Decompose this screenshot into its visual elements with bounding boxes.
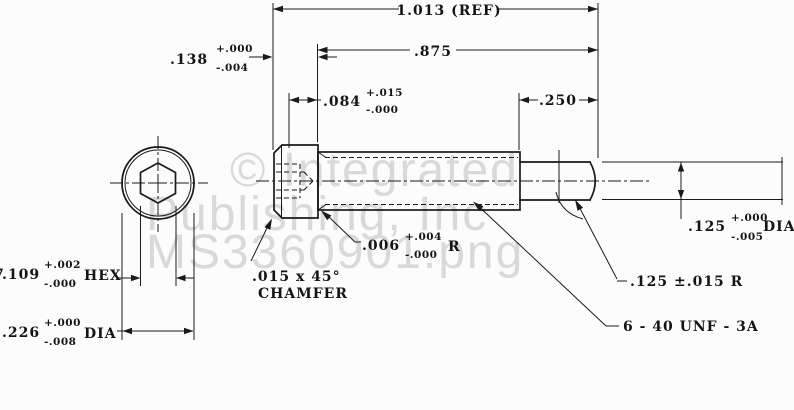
dim-overall-length: 1.013 (REF) (273, 3, 598, 19)
note-tip-radius: .125 ±.015 R (556, 192, 743, 290)
pilot-diameter-value: .125 (688, 219, 726, 235)
tip-radius-label: .125 ±.015 R (630, 274, 743, 290)
thread-spec-label: 6 - 40 UNF - 3A (623, 319, 759, 335)
socket-depth-tol-minus: -.000 (366, 104, 398, 116)
head-height-tol-minus: -.004 (216, 62, 248, 74)
dim-head-diameter: .226 +.000 -.008 DIA (2, 317, 194, 348)
chamfer-note-line1: .015 x 45° (252, 269, 341, 285)
head-height-tol-plus: +.000 (216, 43, 253, 55)
underhead-radius-tol-plus: +.004 (405, 231, 442, 243)
socket-depth-tol-plus: +.015 (366, 87, 403, 99)
overall-length-label: 1.013 (REF) (396, 3, 501, 19)
dim-pilot-length: .250 (520, 93, 598, 109)
dim-shank-length: .875 (318, 44, 599, 60)
hex-size-suffix: HEX (84, 268, 122, 284)
underhead-radius-suffix: R (448, 239, 461, 255)
head-height-value: .138 (170, 52, 208, 68)
head-diameter-value: .226 (2, 325, 40, 341)
head-diameter-tol-plus: +.000 (44, 317, 81, 329)
hex-size-value: .109 (2, 267, 40, 283)
dim-socket-depth: .084 +.015 -.000 (290, 87, 403, 116)
pilot-length-label: .250 (539, 93, 577, 109)
engineering-drawing-page: © Integrated Publishing, Inc MS3360901.p… (0, 0, 794, 410)
dim-head-height: .138 +.000 -.004 (170, 43, 337, 74)
dim-pilot-diameter: .125 +.000 -.005 DIA (602, 157, 794, 243)
hex-size-tol-minus: -.000 (44, 278, 76, 290)
socket-depth-value: .084 (323, 94, 361, 110)
underhead-radius-tol-minus: -.000 (405, 249, 437, 261)
top-extension-lines (273, 3, 598, 158)
chamfer-note-line2: CHAMFER (258, 286, 348, 302)
pilot-diameter-tol-minus: -.005 (731, 231, 763, 243)
shank-length-label: .875 (414, 44, 452, 60)
hex-size-tol-plus: +.002 (44, 259, 81, 271)
drawing-canvas: © Integrated Publishing, Inc MS3360901.p… (0, 0, 794, 410)
pilot-diameter-suffix: DIA (763, 219, 794, 235)
head-diameter-tol-minus: -.008 (44, 336, 76, 348)
underhead-radius-value: .006 (362, 238, 400, 254)
watermark: © Integrated Publishing, Inc MS3360901.p… (146, 144, 524, 279)
head-diameter-suffix: DIA (84, 326, 117, 342)
